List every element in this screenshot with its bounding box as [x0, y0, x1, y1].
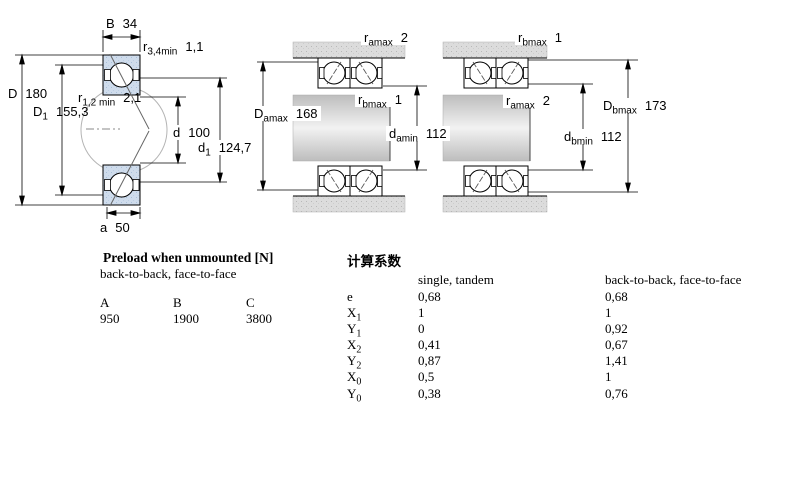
preload-subtitle: back-to-back, face-to-face: [100, 266, 236, 282]
right-dimension-lines: [528, 60, 638, 192]
dim-label-Damax: Damax168: [251, 106, 321, 121]
dim-label-r34min: r3,4min1,1: [143, 39, 203, 54]
dim-label-a: a50: [100, 220, 130, 235]
preload-col-header: B: [173, 295, 182, 311]
dim-label-ramax-right: ramax2: [503, 93, 553, 108]
housing-lower: [293, 196, 405, 212]
dim-label-d1: d1124,7: [195, 140, 254, 155]
dim-label-r12min: r1,2 min2,1: [78, 90, 141, 105]
factors-col2-header: back-to-back, face-to-face: [605, 272, 741, 288]
preload-title: Preload when unmounted [N]: [103, 250, 273, 266]
housing-lower: [443, 196, 547, 212]
calculation-factors-table: 计算系数 single, tandem back-to-back, face-t…: [345, 248, 785, 408]
bearing-datasheet-page: B34 r3,4min1,1 D180 r1,2 min2,1 D1155,3 …: [0, 0, 800, 500]
dim-label-ramax-middle: ramax2: [361, 30, 411, 45]
dim-label-rbmax-middle: rbmax1: [355, 92, 405, 107]
factors-title: 计算系数: [347, 250, 401, 270]
preload-value: 1900: [173, 311, 199, 327]
dim-label-Dbmax: Dbmax173: [600, 98, 670, 113]
factors-col1-header: single, tandem: [418, 272, 494, 288]
dim-label-D1: D1155,3: [33, 104, 89, 119]
dim-label-outer-diameter-D: D180: [8, 86, 47, 101]
technical-drawing: B34 r3,4min1,1 D180 r1,2 min2,1 D1155,3 …: [0, 0, 800, 245]
dim-label-rbmax-right: rbmax1: [515, 30, 565, 45]
dim-label-dbmin: dbmin112: [561, 129, 625, 144]
left-bearing-cross-section: [81, 54, 167, 206]
ball-upper: [110, 63, 134, 87]
dim-label-width-B: B34: [106, 16, 137, 31]
ball-lower: [110, 173, 134, 197]
preload-value: 950: [100, 311, 120, 327]
preload-col-header: A: [100, 295, 109, 311]
right-arrangement-drawing: [443, 42, 547, 212]
preload-table: Preload when unmounted [N] back-to-back,…: [100, 248, 330, 328]
preload-value: 3800: [246, 311, 272, 327]
dim-label-damin: damin112: [386, 126, 450, 141]
dim-label-bore-d: d100: [170, 125, 213, 140]
preload-col-header: C: [246, 295, 255, 311]
